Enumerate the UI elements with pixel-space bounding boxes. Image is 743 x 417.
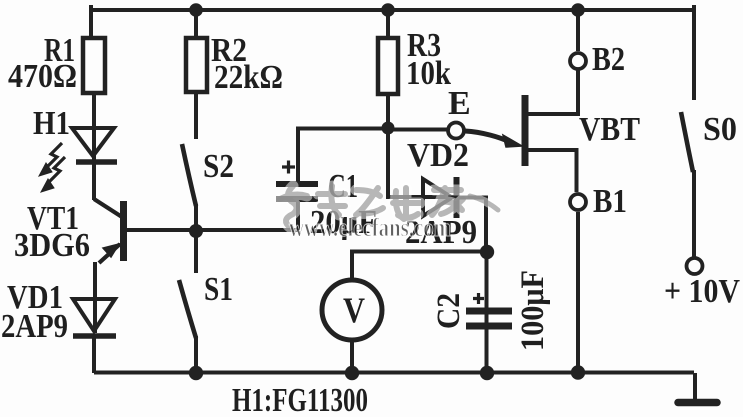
svg-text:C2: C2 [431, 293, 467, 329]
svg-text:2AP9: 2AP9 [1, 308, 68, 345]
svg-text:B1: B1 [593, 183, 627, 220]
svg-text:VBT: VBT [579, 111, 640, 148]
svg-text:470Ω: 470Ω [8, 58, 77, 95]
svg-text:B2: B2 [592, 41, 625, 78]
svg-text:VD2: VD2 [407, 137, 469, 174]
svg-text:10k: 10k [406, 55, 451, 92]
svg-text:100μF: 100μF [515, 270, 551, 351]
svg-text:V: V [343, 290, 365, 330]
svg-text:22kΩ: 22kΩ [214, 59, 283, 96]
svg-text:S2: S2 [203, 148, 234, 185]
svg-text:S1: S1 [204, 271, 233, 308]
svg-text:www.elecfans.com: www.elecfans.com [289, 213, 451, 242]
svg-text:+ 10V: + 10V [664, 273, 740, 310]
svg-text:H1: H1 [33, 105, 70, 142]
svg-text:S0: S0 [703, 111, 737, 148]
svg-text:H1:FG11300: H1:FG11300 [232, 382, 368, 417]
svg-text:3DG6: 3DG6 [14, 227, 90, 264]
svg-text:E: E [448, 85, 471, 122]
